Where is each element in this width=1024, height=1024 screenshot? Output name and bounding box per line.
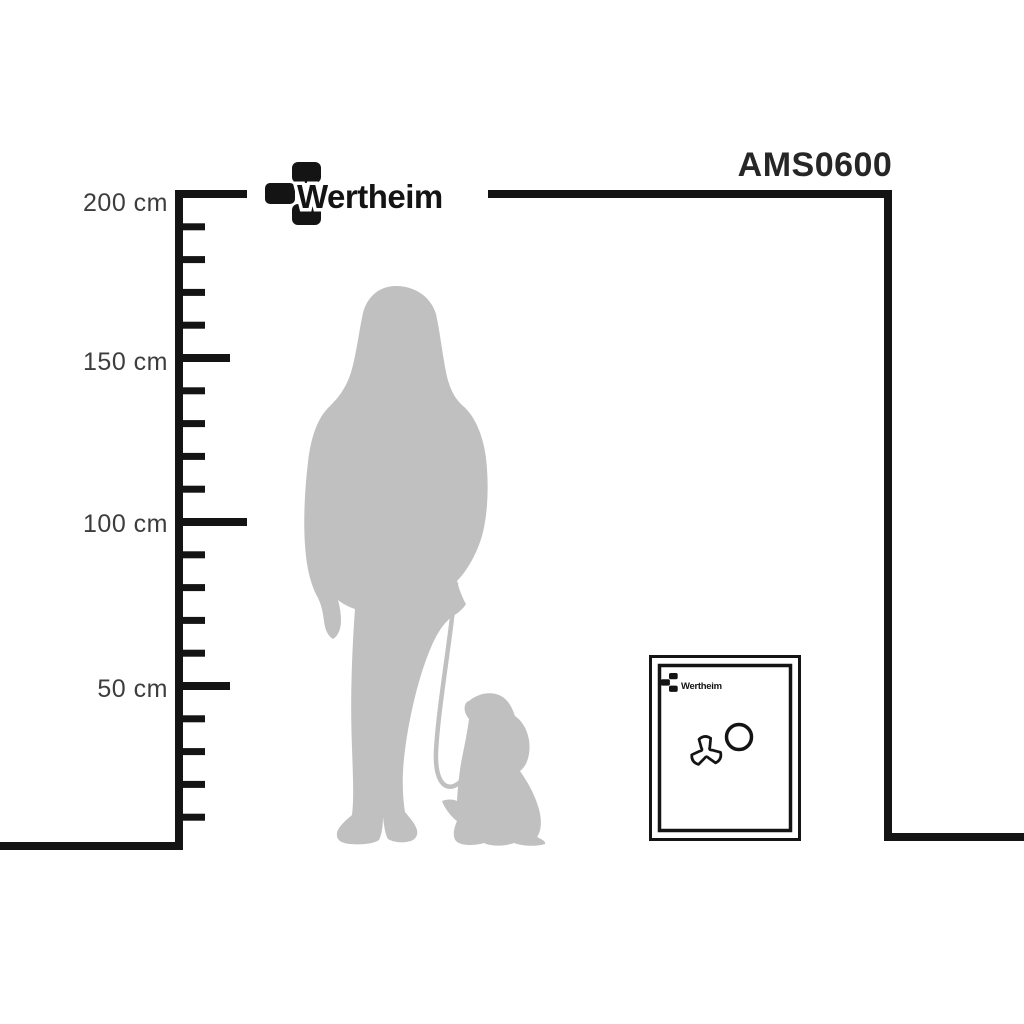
ruler-tick-120cm (175, 453, 205, 460)
top-line (488, 190, 892, 198)
floor-line-right (884, 833, 1024, 841)
ruler-tick-40cm (175, 715, 205, 722)
ruler-tick-200cm (175, 190, 247, 198)
ruler-tick-70cm (175, 617, 205, 624)
ruler-label-200cm: 200 cm (83, 190, 168, 216)
safe: Wertheim (651, 657, 800, 840)
ruler-tick-50cm (175, 682, 230, 690)
ruler-tick-100cm (175, 518, 247, 526)
ruler-tick-180cm (175, 256, 205, 263)
dog-silhouette (442, 693, 545, 846)
safe-body (651, 657, 800, 840)
ruler-tick-190cm (175, 223, 205, 230)
size-comparison-diagram: Wertheim Wertheim 200 cm 150 cm 100 cm 5… (0, 0, 1024, 1024)
brand-logo: Wertheim (265, 162, 443, 225)
floor-line-left (0, 842, 183, 850)
ruler-ticks (175, 190, 247, 821)
safe-brand-logo-text: Wertheim (681, 681, 722, 692)
ruler-tick-110cm (175, 486, 205, 493)
ruler-tick-150cm (175, 354, 230, 362)
ruler-tick-170cm (175, 289, 205, 296)
ruler-tick-160cm (175, 322, 205, 329)
dial-ring-icon (727, 725, 752, 750)
product-model-label: AMS0600 (700, 146, 930, 185)
ruler-label-50cm: 50 cm (97, 676, 168, 702)
ruler-tick-130cm (175, 420, 205, 427)
person-silhouette (304, 286, 487, 844)
ruler-tick-90cm (175, 551, 205, 558)
right-vertical-line (884, 190, 892, 841)
ruler-tick-140cm (175, 387, 205, 394)
ruler-tick-80cm (175, 584, 205, 591)
ruler-tick-20cm (175, 781, 205, 788)
ruler-tick-30cm (175, 748, 205, 755)
brand-logo-text: Wertheim (297, 178, 443, 215)
ruler-tick-10cm (175, 814, 205, 821)
ruler-label-100cm: 100 cm (83, 511, 168, 537)
ruler-label-150cm: 150 cm (83, 349, 168, 375)
ruler-tick-60cm (175, 650, 205, 657)
